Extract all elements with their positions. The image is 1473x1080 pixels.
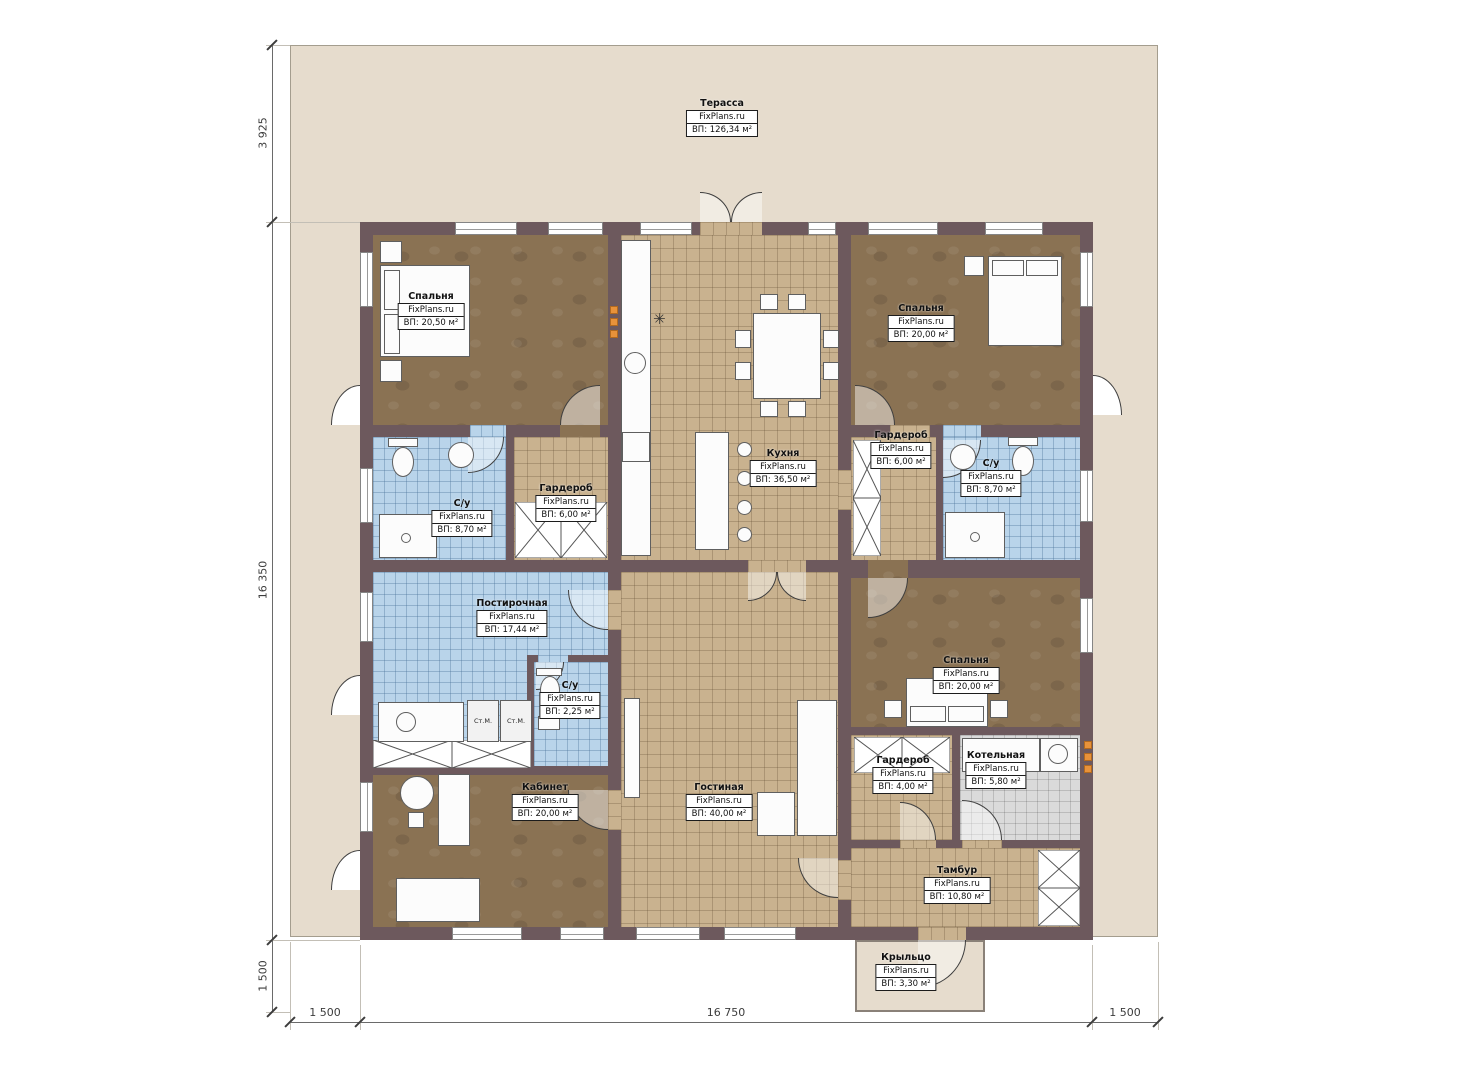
room-name: Спальня (933, 655, 1000, 666)
room-name: С/у (960, 458, 1021, 469)
vent-marker (610, 306, 618, 314)
kitchen-island (695, 432, 729, 550)
window (452, 927, 522, 940)
washing-machine: Ст.М. (500, 700, 532, 742)
room-label-terrace: Терасса FixPlans.ruВП: 126,34 м² (686, 98, 758, 137)
room-name: Гардероб (870, 430, 931, 441)
chair (823, 330, 839, 348)
room-label-office: Кабинет FixPlans.ruВП: 20,00 м² (512, 782, 579, 821)
room-label-bedroom-tr: Спальня FixPlans.ruВП: 20,00 м² (888, 303, 955, 342)
extension-line (360, 945, 361, 1030)
vent-marker (1084, 741, 1092, 749)
shower-drain (401, 533, 411, 543)
window (1080, 598, 1093, 653)
room-area: ВП: 20,00 м² (889, 329, 954, 341)
closet (373, 740, 452, 768)
room-brand: FixPlans.ru (925, 878, 990, 891)
fridge-icon: ✳ (653, 312, 666, 327)
laundry-sink (396, 712, 416, 732)
kitchen-sink (624, 352, 646, 374)
window (455, 222, 517, 235)
chair (788, 401, 806, 417)
window (636, 927, 700, 940)
window (560, 927, 604, 940)
room-brand: FixPlans.ru (961, 471, 1020, 484)
dim-label-bottom-right: 1 500 (1109, 1006, 1141, 1019)
toilet-tank (388, 438, 418, 447)
door-opening (868, 560, 908, 578)
window (1080, 252, 1093, 307)
room-area: ВП: 3,30 м² (876, 978, 935, 990)
bar-stool (737, 500, 752, 515)
door-opening (943, 425, 981, 437)
room-area: ВП: 6,00 м² (536, 509, 595, 521)
vent-marker (1084, 753, 1092, 761)
room-brand: FixPlans.ru (540, 693, 599, 706)
room-name: Постирочная (476, 598, 547, 609)
room-brand: FixPlans.ru (477, 611, 546, 624)
door-opening (748, 560, 806, 572)
room-brand: FixPlans.ru (432, 511, 491, 524)
room-name: Гардероб (872, 755, 933, 766)
room-area: ВП: 10,80 м² (925, 891, 990, 903)
armchair (757, 792, 795, 836)
door-opening (608, 790, 621, 830)
room-label-wardrobe-left: Гардероб FixPlans.ruВП: 6,00 м² (535, 483, 596, 522)
room-area: ВП: 5,80 м² (966, 776, 1025, 788)
sink (448, 442, 474, 468)
room-area: ВП: 6,00 м² (871, 456, 930, 468)
room-brand: FixPlans.ru (687, 111, 757, 124)
window (724, 927, 796, 940)
room-area: ВП: 2,25 м² (540, 706, 599, 718)
room-name: Спальня (398, 291, 465, 302)
room-label-boiler: Котельная FixPlans.ruВП: 5,80 м² (965, 750, 1026, 789)
extension-line (1092, 945, 1093, 1030)
room-area: ВП: 8,70 м² (961, 484, 1020, 496)
room-brand: FixPlans.ru (889, 316, 954, 329)
room-label-bedroom-tl: Спальня FixPlans.ruВП: 20,50 м² (398, 291, 465, 330)
room-brand: FixPlans.ru (687, 795, 752, 808)
laundry-counter (378, 702, 464, 742)
window (360, 782, 373, 832)
door-opening (538, 655, 568, 662)
room-name: Тамбур (924, 865, 991, 876)
room-name: Спальня (888, 303, 955, 314)
extension-line (1158, 942, 1159, 1030)
dim-label-bottom-left: 1 500 (309, 1006, 341, 1019)
room-brand: FixPlans.ru (876, 965, 935, 978)
room-label-living: Гостиная FixPlans.ruВП: 40,00 м² (686, 782, 753, 821)
office-sofa (396, 878, 480, 922)
boiler-dial (1048, 744, 1068, 764)
window (1080, 470, 1093, 522)
door-opening (900, 840, 936, 848)
window (360, 468, 373, 523)
pillow (1026, 260, 1058, 276)
closet (1038, 850, 1080, 888)
chair (760, 401, 778, 417)
door-opening (700, 222, 762, 235)
room-brand: FixPlans.ru (873, 768, 932, 781)
room-label-wardrobe-right: Гардероб FixPlans.ruВП: 6,00 м² (870, 430, 931, 469)
dimension-line-bottom (290, 1022, 1158, 1023)
room-label-bedroom-mid: Спальня FixPlans.ruВП: 20,00 м² (933, 655, 1000, 694)
nightstand (990, 700, 1008, 718)
window (985, 222, 1043, 235)
door-opening (470, 425, 506, 437)
tv-stand (624, 698, 640, 798)
room-name: Гардероб (535, 483, 596, 494)
room-brand: FixPlans.ru (751, 461, 816, 474)
room-label-bath-right: С/у FixPlans.ruВП: 8,70 м² (960, 458, 1021, 497)
room-area: ВП: 20,50 м² (399, 317, 464, 329)
window (360, 252, 373, 307)
closet (452, 740, 531, 768)
vent-marker (1084, 765, 1092, 773)
room-brand: FixPlans.ru (513, 795, 578, 808)
window (808, 222, 836, 235)
closet (853, 498, 881, 556)
window (868, 222, 938, 235)
chair (408, 812, 424, 828)
room-name: Терасса (686, 98, 758, 109)
room-area: ВП: 20,00 м² (513, 808, 578, 820)
dim-label-left-middle: 16 350 (257, 561, 270, 600)
nightstand (884, 700, 902, 718)
room-name: Кухня (750, 448, 817, 459)
floor-plan: ✳ Ст.М. Ст.М. (0, 0, 1473, 1080)
toilet-tank (1008, 437, 1038, 446)
room-area: ВП: 20,00 м² (934, 681, 999, 693)
room-name: С/у (431, 498, 492, 509)
chair (823, 362, 839, 380)
room-brand: FixPlans.ru (934, 668, 999, 681)
kitchen-counter (621, 240, 651, 556)
room-label-bath-small: С/у FixPlans.ruВП: 2,25 м² (539, 680, 600, 719)
toilet (392, 447, 414, 477)
nightstand (380, 241, 402, 263)
dining-table (753, 313, 821, 399)
nightstand (964, 256, 984, 276)
window (548, 222, 603, 235)
room-brand: FixPlans.ru (536, 496, 595, 509)
door-opening (838, 470, 851, 510)
room-label-vestibule: Тамбур FixPlans.ruВП: 10,80 м² (924, 865, 991, 904)
dim-label-bottom-middle: 16 750 (707, 1006, 746, 1019)
door-opening (608, 590, 621, 630)
room-brand: FixPlans.ru (966, 763, 1025, 776)
pillow (992, 260, 1024, 276)
sofa (797, 700, 837, 836)
room-label-wardrobe-small: Гардероб FixPlans.ruВП: 4,00 м² (872, 755, 933, 794)
room-label-porch: Крыльцо FixPlans.ruВП: 3,30 м² (875, 952, 936, 991)
entrance-opening (918, 927, 966, 940)
door-opening (838, 860, 851, 900)
bar-stool (737, 527, 752, 542)
vent-marker (610, 330, 618, 338)
stove (622, 432, 650, 462)
chair (735, 362, 751, 380)
toilet-tank (536, 668, 562, 676)
closet (1038, 888, 1080, 926)
room-label-laundry: Постирочная FixPlans.ruВП: 17,44 м² (476, 598, 547, 637)
window (360, 592, 373, 642)
dimension-line-left (272, 45, 273, 1012)
nightstand (380, 360, 402, 382)
pillow (910, 706, 946, 722)
vent-marker (610, 318, 618, 326)
room-name: Кабинет (512, 782, 579, 793)
dim-label-left-bottom: 1 500 (257, 960, 270, 992)
room-label-bath-left: С/у FixPlans.ruВП: 8,70 м² (431, 498, 492, 537)
room-brand: FixPlans.ru (871, 443, 930, 456)
room-area: ВП: 4,00 м² (873, 781, 932, 793)
room-area: ВП: 126,34 м² (687, 124, 757, 136)
window (640, 222, 692, 235)
room-name: Котельная (965, 750, 1026, 761)
room-area: ВП: 17,44 м² (477, 624, 546, 636)
chair (735, 330, 751, 348)
extension-line (290, 942, 291, 1030)
office-table (400, 776, 434, 810)
room-area: ВП: 40,00 м² (687, 808, 752, 820)
extension-line (266, 940, 360, 941)
dim-label-left-top: 3 925 (257, 117, 270, 149)
shower-drain (970, 532, 980, 542)
room-name: Крыльцо (875, 952, 936, 963)
room-brand: FixPlans.ru (399, 304, 464, 317)
pillow (948, 706, 984, 722)
chair (788, 294, 806, 310)
room-name: Гостиная (686, 782, 753, 793)
room-area: ВП: 36,50 м² (751, 474, 816, 486)
room-label-kitchen: Кухня FixPlans.ruВП: 36,50 м² (750, 448, 817, 487)
door-opening (962, 840, 1002, 848)
room-area: ВП: 8,70 м² (432, 524, 491, 536)
desk (438, 774, 470, 846)
door-opening (560, 425, 600, 437)
washing-machine: Ст.М. (467, 700, 499, 742)
extension-line (266, 222, 360, 223)
chair (760, 294, 778, 310)
room-name: С/у (539, 680, 600, 691)
